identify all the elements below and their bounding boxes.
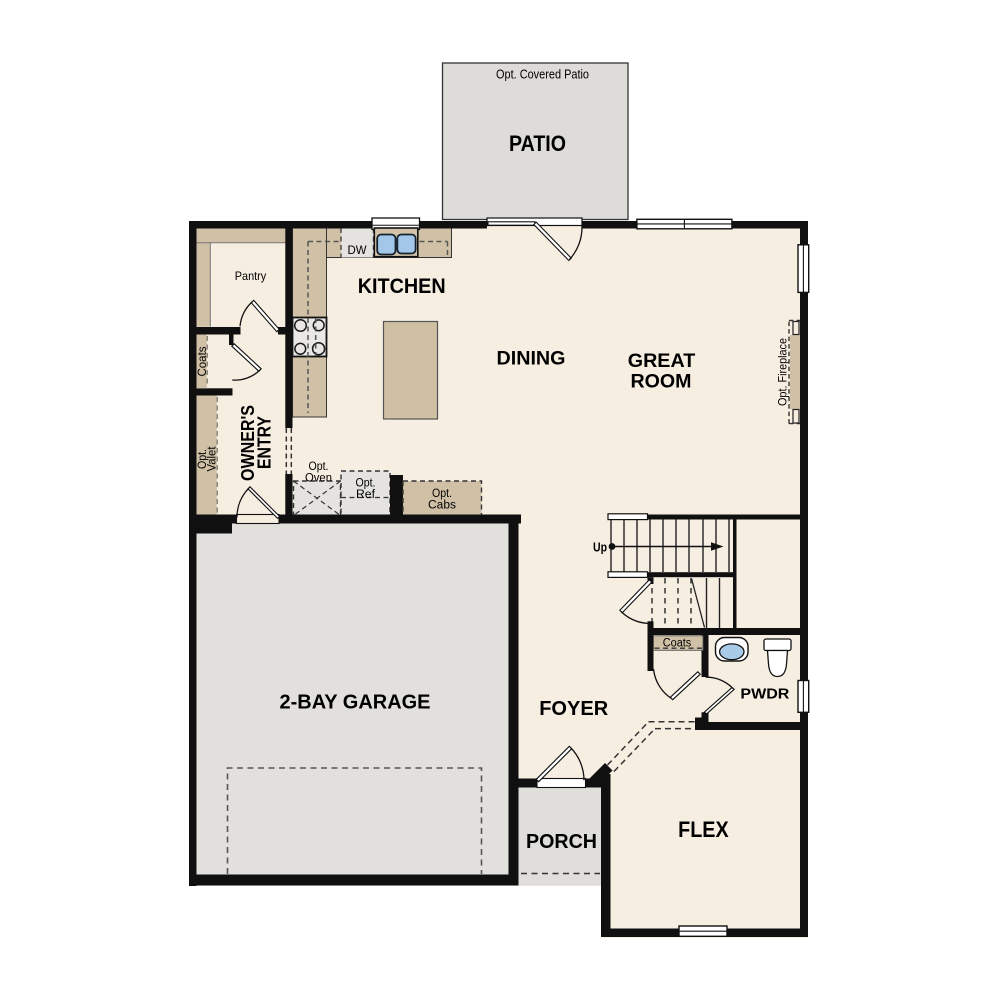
- svg-text:Up: Up: [593, 540, 607, 554]
- svg-text:FOYER: FOYER: [539, 697, 608, 720]
- svg-text:Opt.: Opt.: [309, 461, 329, 473]
- svg-text:Opt.: Opt.: [432, 488, 452, 500]
- svg-text:Opt.: Opt.: [356, 478, 376, 490]
- svg-text:2-BAY GARAGE: 2-BAY GARAGE: [280, 692, 431, 714]
- svg-text:Valet: Valet: [207, 446, 219, 472]
- svg-text:DINING: DINING: [497, 348, 566, 370]
- svg-text:FLEX: FLEX: [678, 817, 729, 842]
- svg-text:PWDR: PWDR: [740, 686, 789, 703]
- svg-text:Coats: Coats: [663, 638, 692, 650]
- svg-text:PATIO: PATIO: [509, 131, 566, 156]
- svg-text:Oven: Oven: [305, 473, 332, 485]
- svg-text:Coats: Coats: [197, 346, 209, 376]
- svg-text:Ref: Ref: [356, 489, 376, 501]
- svg-text:Pantry: Pantry: [235, 269, 267, 283]
- svg-text:ROOM: ROOM: [631, 371, 692, 393]
- svg-text:KITCHEN: KITCHEN: [358, 274, 446, 298]
- svg-text:Opt. Fireplace: Opt. Fireplace: [776, 338, 790, 406]
- svg-text:Opt. Covered Patio: Opt. Covered Patio: [496, 67, 589, 82]
- svg-text:Cabs: Cabs: [428, 500, 456, 512]
- svg-text:DW: DW: [348, 245, 367, 257]
- svg-text:GREAT: GREAT: [628, 350, 696, 372]
- svg-text:ENTRY: ENTRY: [255, 416, 275, 469]
- svg-text:PORCH: PORCH: [526, 830, 597, 853]
